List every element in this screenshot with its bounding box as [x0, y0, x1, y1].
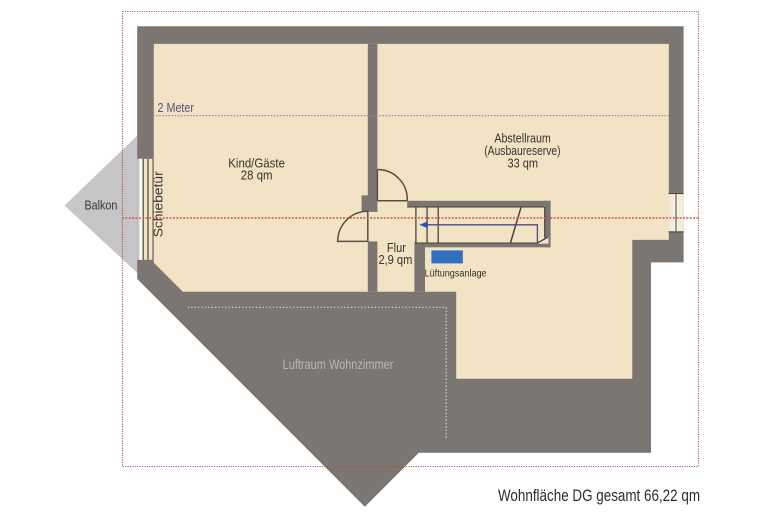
- svg-text:28 qm: 28 qm: [241, 168, 273, 182]
- svg-text:2 Meter: 2 Meter: [158, 100, 195, 115]
- svg-text:Lüftungsanlage: Lüftungsanlage: [425, 269, 487, 280]
- svg-text:33 qm: 33 qm: [508, 157, 539, 171]
- svg-text:Schiebetür: Schiebetür: [151, 171, 165, 237]
- svg-text:Balkon: Balkon: [85, 198, 118, 213]
- svg-text:2,9 qm: 2,9 qm: [378, 253, 412, 267]
- svg-text:Luftraum Wohnzimmer: Luftraum Wohnzimmer: [283, 356, 394, 372]
- svg-text:Wohnfläche DG gesamt 66,22 qm: Wohnfläche DG gesamt 66,22 qm: [498, 486, 700, 505]
